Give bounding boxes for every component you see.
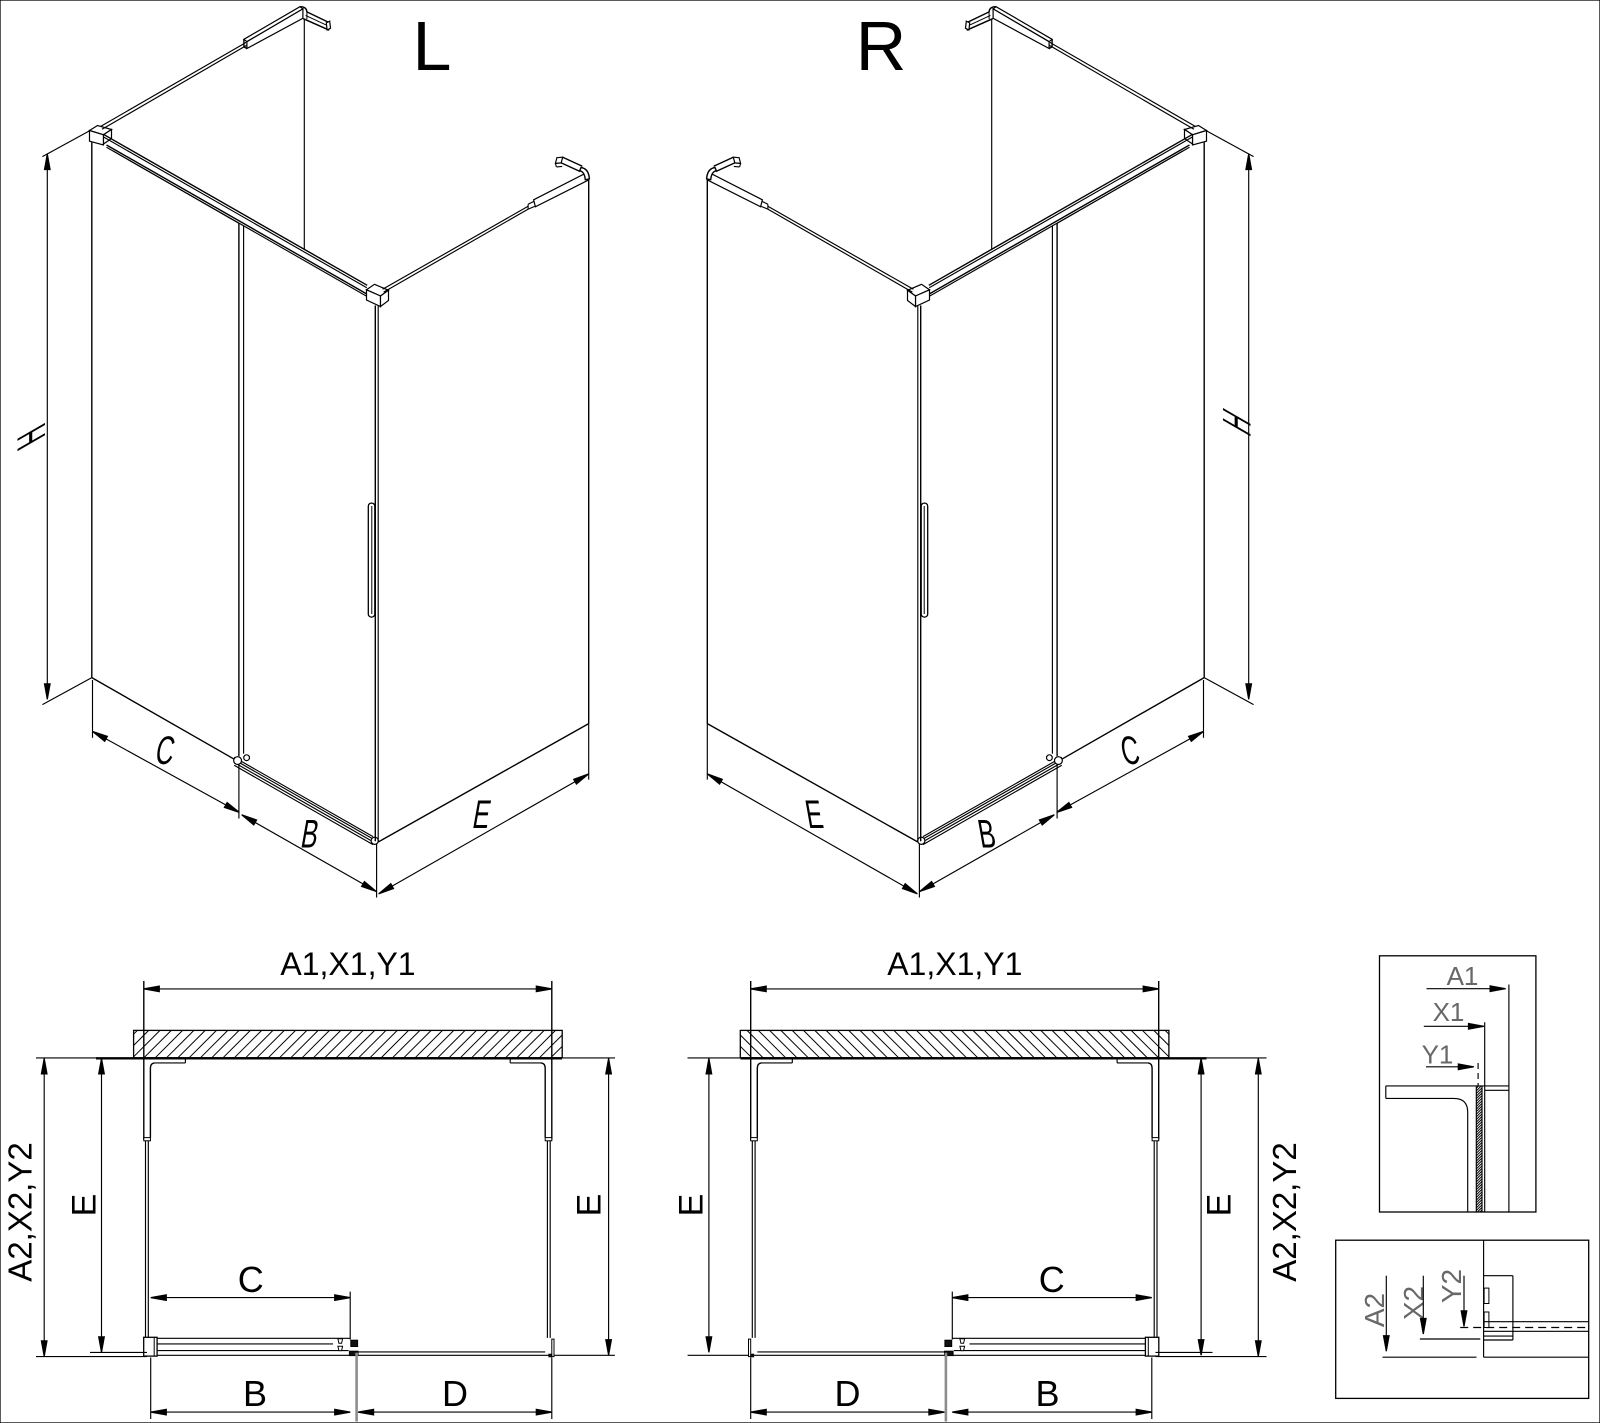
svg-text:B: B — [1035, 1373, 1059, 1414]
svg-text:B: B — [243, 1373, 267, 1414]
svg-text:E: E — [673, 1194, 711, 1217]
svg-text:R: R — [856, 7, 907, 85]
svg-text:A2,X2,Y2: A2,X2,Y2 — [2, 1142, 39, 1281]
svg-text:C: C — [1039, 1259, 1065, 1300]
svg-text:E: E — [1201, 1194, 1239, 1217]
svg-text:D: D — [835, 1373, 861, 1414]
svg-text:D: D — [442, 1373, 468, 1414]
svg-text:A1: A1 — [1447, 961, 1479, 991]
svg-text:E: E — [571, 1194, 609, 1217]
svg-text:X1: X1 — [1433, 997, 1465, 1027]
svg-text:C: C — [238, 1259, 264, 1300]
svg-text:A1,X1,Y1: A1,X1,Y1 — [280, 946, 415, 982]
svg-text:L: L — [413, 7, 452, 85]
svg-text:A2,X2,Y2: A2,X2,Y2 — [1266, 1142, 1303, 1281]
svg-text:A1,X1,Y1: A1,X1,Y1 — [887, 946, 1022, 982]
svg-text:E: E — [66, 1194, 104, 1217]
svg-text:A2: A2 — [1359, 1293, 1390, 1327]
svg-text:X2: X2 — [1398, 1286, 1429, 1320]
svg-text:Y2: Y2 — [1436, 1269, 1467, 1303]
svg-text:Y1: Y1 — [1422, 1040, 1454, 1070]
